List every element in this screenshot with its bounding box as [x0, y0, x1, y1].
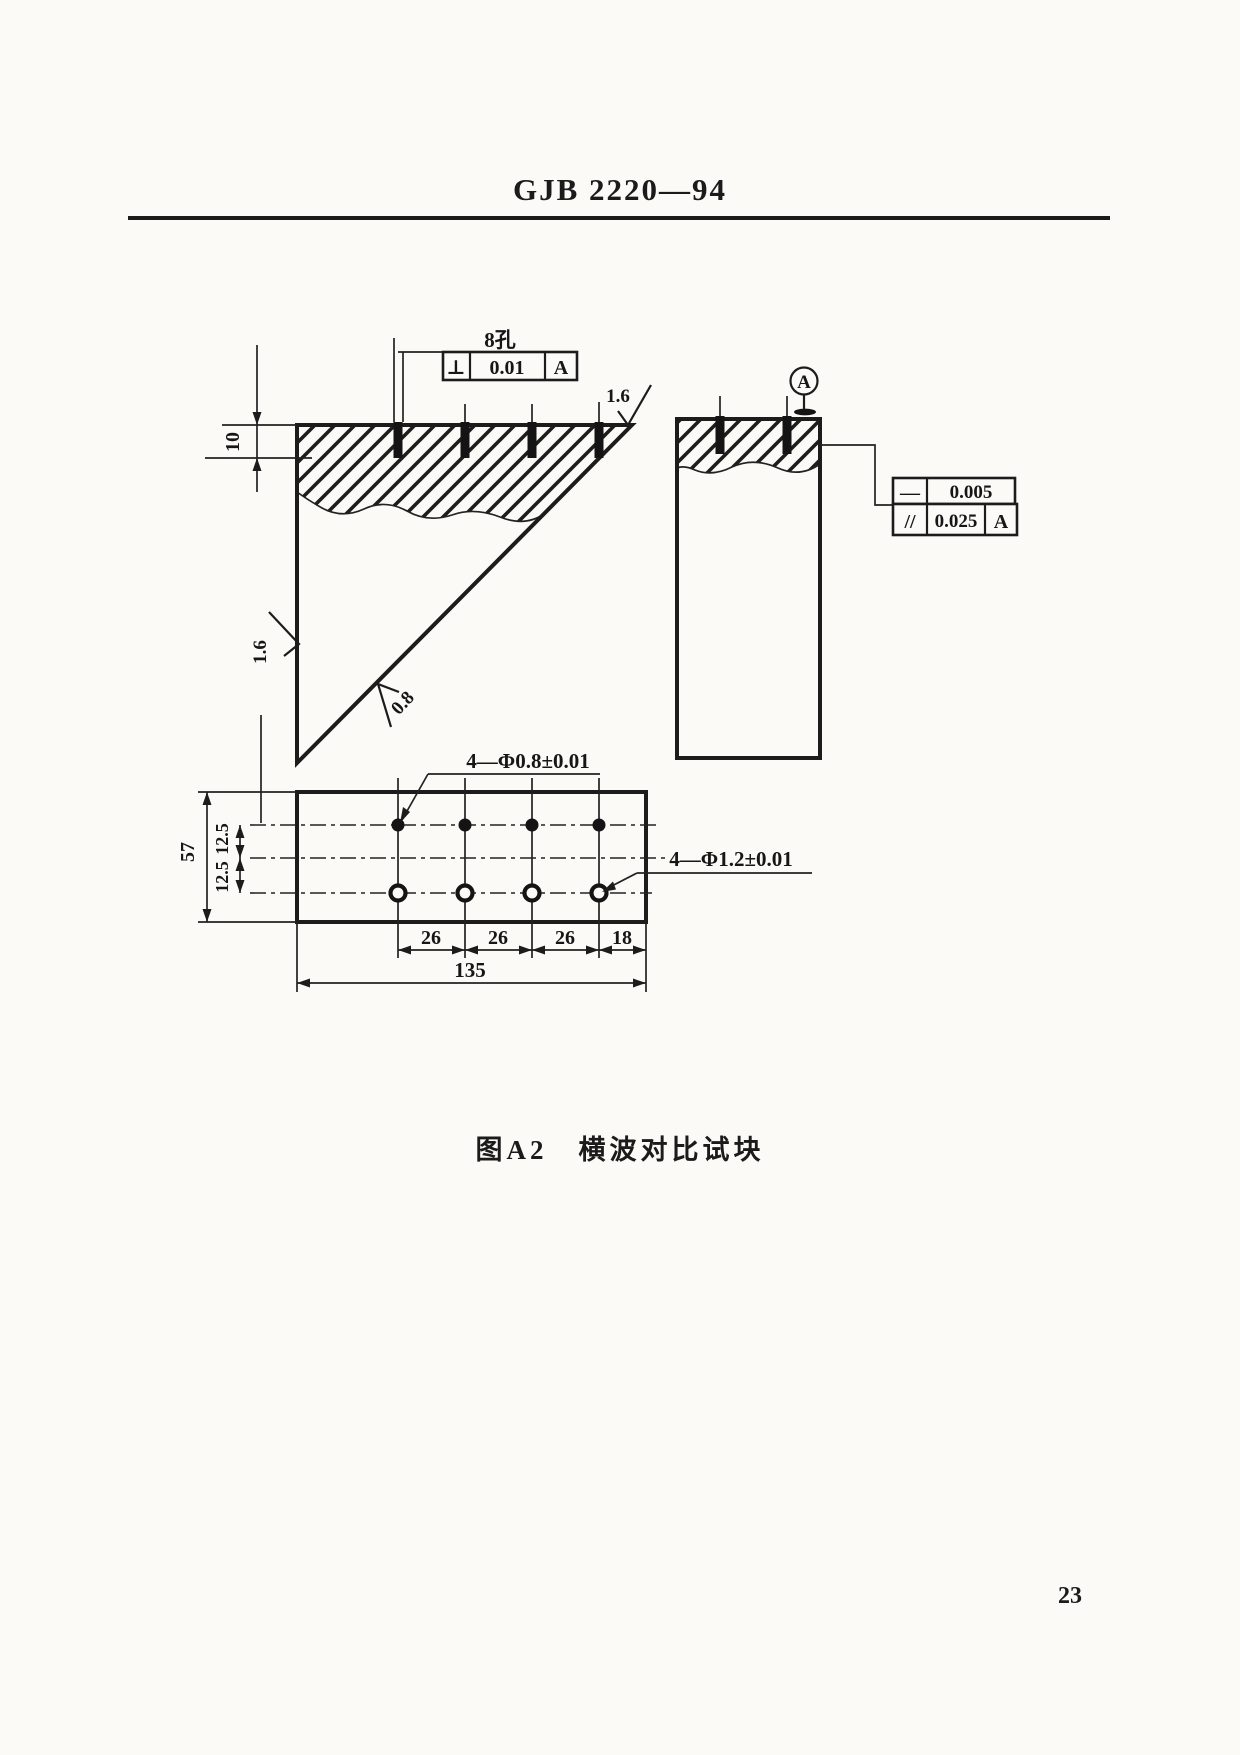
dim-row-offset-top: 12.5: [212, 823, 232, 855]
large-hole: [458, 886, 473, 901]
arrowhead: [465, 946, 478, 955]
page-number: 23: [1035, 1583, 1105, 1610]
holes-callout: 8孔 ⊥ 0.01 A: [394, 328, 577, 422]
parallelism-datum: A: [994, 511, 1009, 533]
large-hole-callout: 4—Φ1.2±0.01: [602, 847, 812, 892]
datum-base-bar: [794, 409, 816, 416]
side-hole-2: [461, 422, 470, 458]
dim-spacing-3: 26: [555, 927, 575, 949]
arrowhead: [203, 909, 212, 922]
holes-count-label: 8孔: [484, 328, 516, 352]
large-hole-label: 4—Φ1.2±0.01: [669, 847, 792, 871]
plan-view: [250, 778, 668, 958]
straightness-symbol: —: [899, 482, 921, 504]
leader-line: [820, 445, 893, 505]
dim-plate-width-value: 135: [454, 958, 486, 982]
arrowhead: [236, 825, 245, 838]
front-view: [297, 402, 632, 763]
arrowhead: [633, 979, 646, 988]
side-hole-1: [394, 422, 403, 458]
parallelism-tolerance: 0.025: [935, 511, 978, 532]
technical-drawing: 8孔 ⊥ 0.01 A 1.6 1.6 0.8 10: [0, 0, 1240, 1755]
side-view: [677, 396, 820, 758]
small-hole-callout: 4—Φ0.8±0.01: [400, 749, 600, 823]
arrowhead: [203, 792, 212, 805]
datum-letter: A: [797, 372, 811, 393]
arrowhead: [633, 946, 646, 955]
roughness-value-left: 1.6: [250, 640, 271, 664]
arrowhead: [532, 946, 545, 955]
side-hole-3: [528, 422, 537, 458]
plan-view-outline: [297, 792, 646, 922]
arrowhead: [253, 412, 262, 425]
arrowhead: [452, 946, 465, 955]
large-hole: [391, 886, 406, 901]
arrowhead: [398, 946, 411, 955]
dim-spacing-2: 26: [488, 927, 508, 949]
arrowhead: [297, 979, 310, 988]
perpendicularity-symbol: ⊥: [446, 357, 465, 379]
perpendicularity-datum: A: [554, 357, 569, 379]
large-hole: [525, 886, 540, 901]
arrowhead: [586, 946, 599, 955]
roughness-value-incline: 0.8: [387, 687, 419, 719]
arrowhead: [599, 946, 612, 955]
parallelism-symbol: //: [903, 511, 916, 533]
scanned-standard-page: GJB 2220—94: [0, 0, 1240, 1755]
small-hole-label: 4—Φ0.8±0.01: [466, 749, 589, 773]
hatch-region: [677, 419, 820, 473]
figure-caption: 图A2 横波对比试块: [13, 1128, 1227, 1167]
dim-spacing-1: 26: [421, 927, 441, 949]
hole-axis-tolerances: — 0.005 // 0.025 A: [820, 445, 1017, 535]
dim-row-offset-bottom: 12.5: [212, 861, 232, 893]
dimension-hole-spacing: 26 26 26 18 135: [297, 922, 646, 992]
side-hole-4: [595, 422, 604, 458]
large-hole: [592, 886, 607, 901]
side-hole-row1: [716, 416, 725, 454]
arrowhead: [236, 858, 245, 871]
arrowhead: [519, 946, 532, 955]
small-hole: [593, 819, 606, 832]
arrowhead: [253, 458, 262, 471]
dim-hole-depth-value: 10: [222, 432, 244, 452]
straightness-tolerance: 0.005: [950, 482, 993, 503]
roughness-value-top: 1.6: [606, 386, 630, 407]
small-hole: [526, 819, 539, 832]
datum-feature-symbol: A: [791, 368, 818, 416]
arrowhead: [236, 845, 245, 858]
side-hole-row2: [783, 416, 792, 454]
small-hole: [459, 819, 472, 832]
dimension-plate-height: 57 12.5 12.5: [177, 792, 296, 922]
arrowhead: [236, 880, 245, 893]
dim-spacing-4: 18: [612, 927, 632, 949]
dim-plate-height-value: 57: [177, 842, 199, 862]
roughness-symbol-left: [269, 612, 299, 656]
perpendicularity-tolerance: 0.01: [490, 357, 525, 379]
small-hole: [392, 819, 405, 832]
